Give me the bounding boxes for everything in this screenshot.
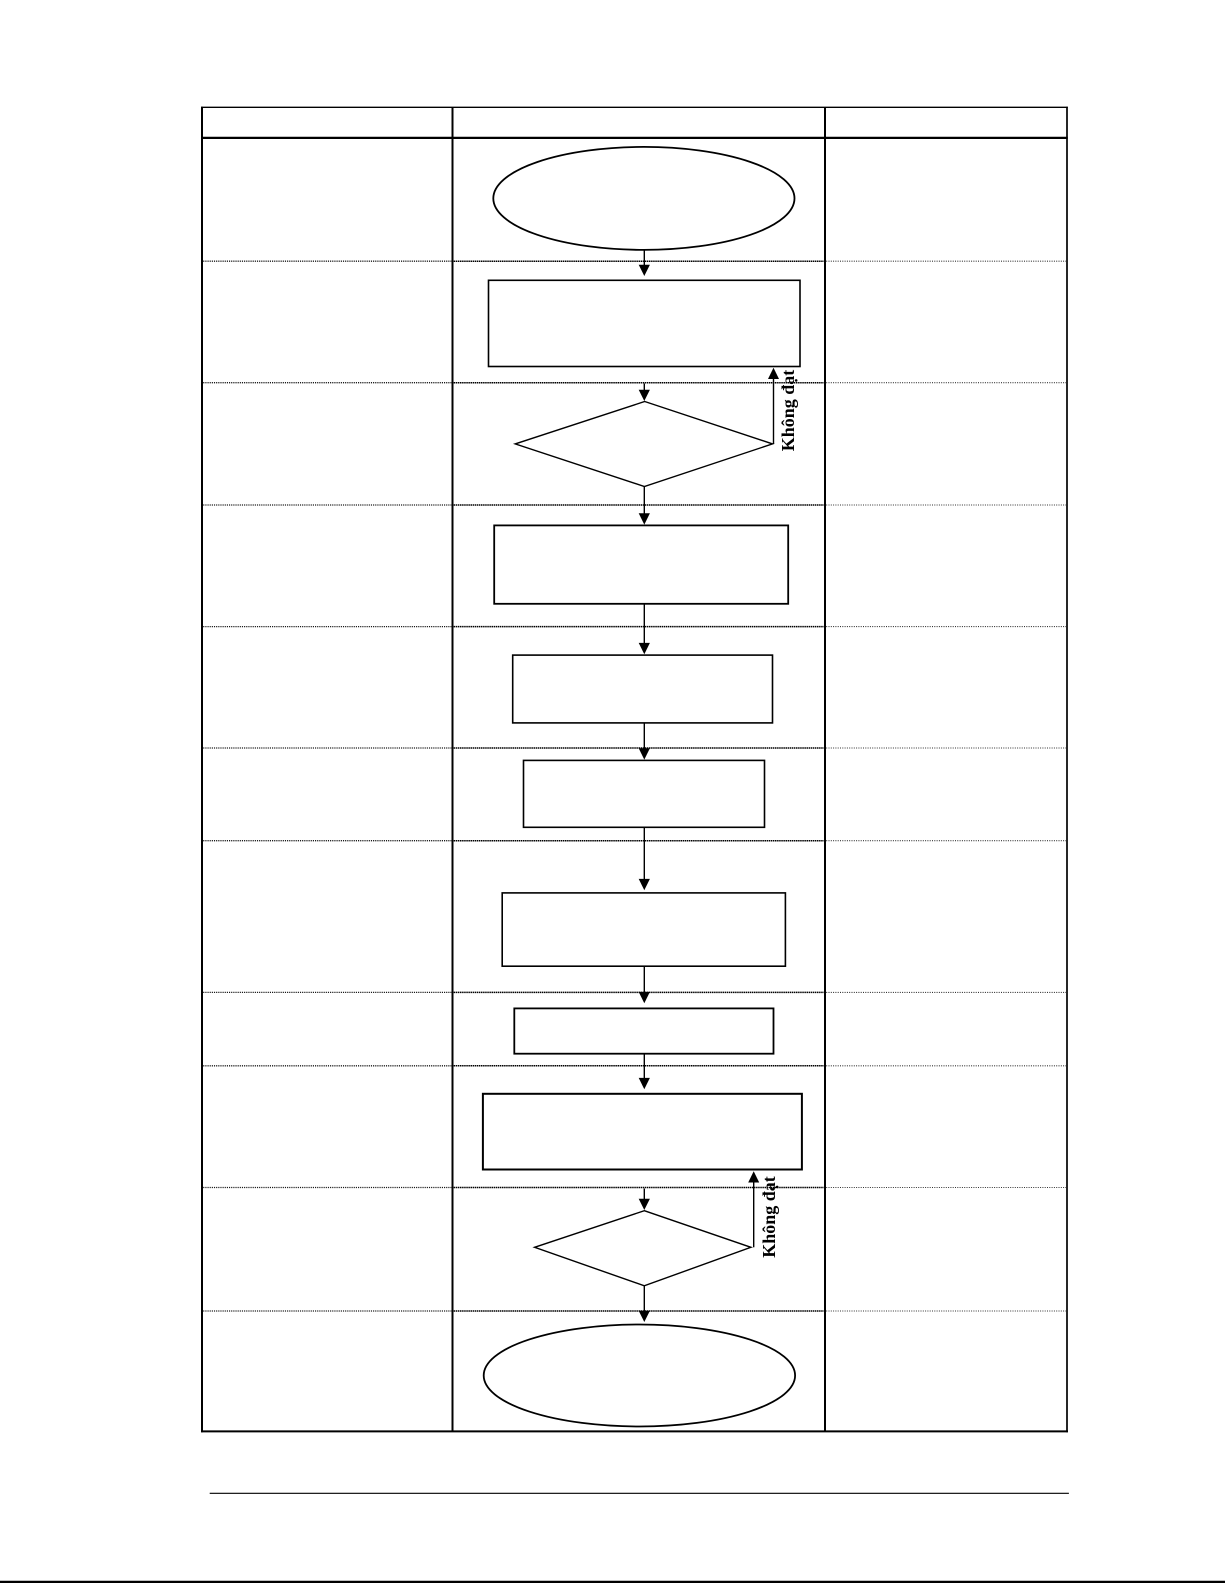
svg-text:Không đạt: Không đạt xyxy=(778,370,798,452)
svg-text:Không đạt: Không đạt xyxy=(759,1176,779,1258)
